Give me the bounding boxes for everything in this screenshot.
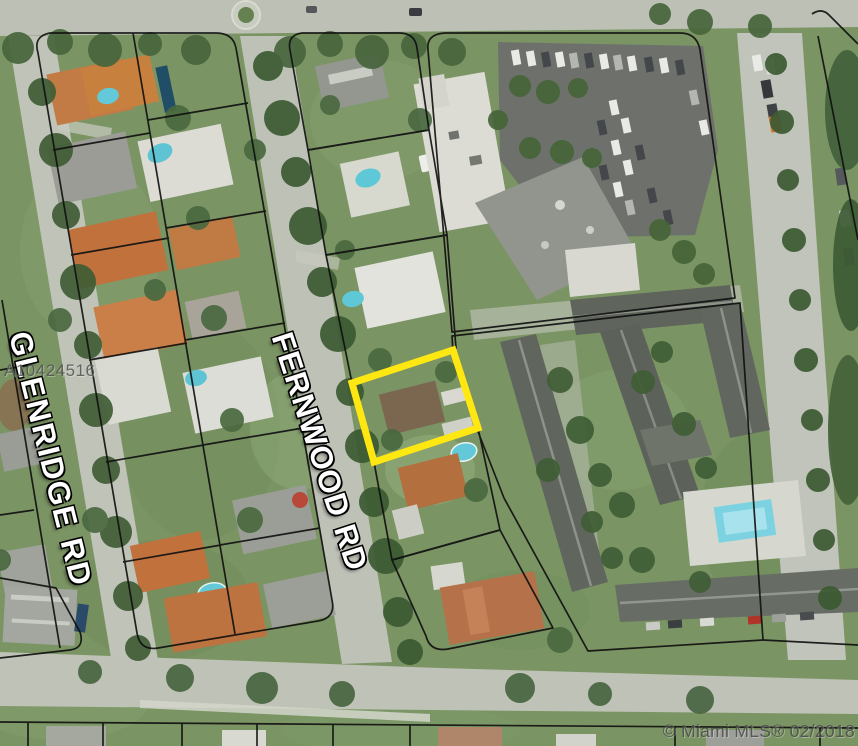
roof-detail <box>555 200 565 210</box>
rooftop-unit <box>448 130 459 140</box>
flowering-tree <box>292 492 308 508</box>
car <box>409 8 422 16</box>
roof-detail <box>541 241 549 249</box>
house-roof-partial <box>706 730 764 746</box>
commercial-building-white-south <box>565 243 640 297</box>
car <box>306 6 317 13</box>
roof-detail <box>586 226 594 234</box>
aerial-map: GLENRIDGE RD FERNWOOD RD A10424516 © Mia… <box>0 0 858 746</box>
aerial-photo-layer <box>0 0 858 746</box>
house-roof-partial <box>46 726 106 746</box>
roundabout-island <box>238 7 254 23</box>
house-roof-partial <box>438 727 502 746</box>
house-roof-partial <box>556 734 596 746</box>
house-roof-partial <box>222 730 266 746</box>
